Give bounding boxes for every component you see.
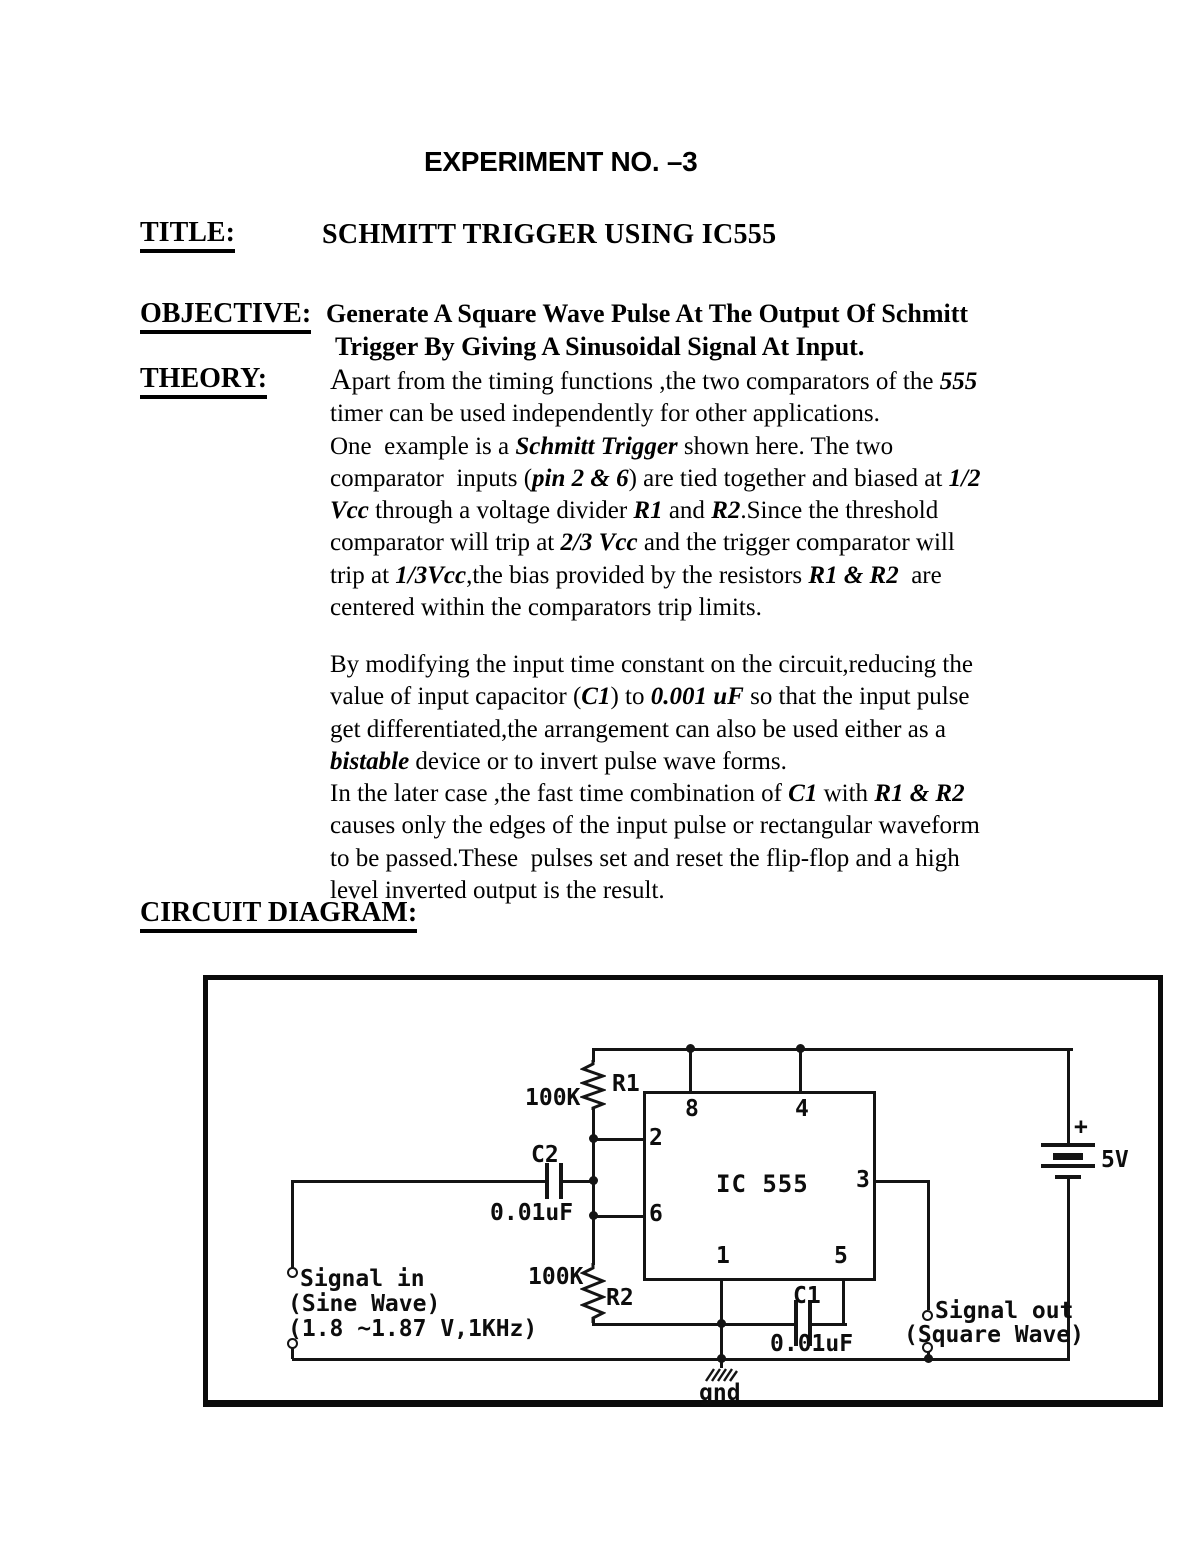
ic555-label: IC 555 — [716, 1172, 809, 1196]
document-page: { "header": { "title": "EXPERIMENT NO. –… — [0, 0, 1200, 1553]
wire-top-rail — [593, 1048, 1073, 1051]
signal-in-label: Signal in — [300, 1267, 425, 1291]
signal-out-terminal — [922, 1310, 933, 1321]
c2-value-label: 0.01uF — [490, 1201, 573, 1225]
wire-pin3 — [876, 1180, 930, 1183]
text-line: bistable device or to invert pulse wave … — [330, 746, 980, 778]
signal-in-type-label: (Sine Wave) — [288, 1292, 440, 1316]
wire-pin8 — [689, 1048, 692, 1093]
junction-dot — [589, 1211, 598, 1220]
title-text: SCHMITT TRIGGER USING IC555 — [322, 219, 776, 251]
signal-in-spec-label: (1.8 ~1.87 V,1KHz) — [288, 1317, 537, 1341]
resistor-r1-symbol — [580, 1060, 606, 1110]
theory-label: THEORY: — [140, 364, 267, 399]
junction-dot — [717, 1354, 726, 1363]
r1-value-label: 100K — [525, 1086, 580, 1110]
battery-plate-short — [1053, 1153, 1083, 1160]
text-line: comparator will trip at 2/3 Vcc and the … — [330, 527, 981, 559]
text-line: By modifying the input time constant on … — [330, 649, 980, 681]
text-line: level inverted output is the result. — [330, 875, 980, 907]
text-line: comparator inputs (pin 2 & 6) are tied t… — [330, 463, 981, 495]
r2-name-label: R2 — [606, 1286, 634, 1310]
text-line: trip at 1/3Vcc,the bias provided by the … — [330, 560, 981, 592]
wire-divider — [592, 1108, 595, 1265]
wire-mid-rail-left — [593, 1323, 796, 1326]
text-line: to be passed.These pulses set and reset … — [330, 843, 980, 875]
battery-plus-label: + — [1074, 1115, 1088, 1139]
junction-dot — [924, 1354, 933, 1363]
theory-paragraph-2: By modifying the input time constant on … — [330, 649, 980, 907]
text-line: Apart from the timing functions ,the two… — [330, 364, 981, 398]
text-line: One example is a Schmitt Trigger shown h… — [330, 431, 981, 463]
objective-text: Generate A Square Wave Pulse At The Outp… — [326, 297, 968, 363]
junction-dot — [796, 1044, 805, 1053]
junction-dot — [686, 1044, 695, 1053]
title-label: TITLE: — [140, 218, 235, 253]
wire-c2-left — [292, 1180, 547, 1183]
battery-plate-long — [1041, 1164, 1095, 1168]
text-line: Trigger By Giving A Sinusoidal Signal At… — [335, 330, 968, 363]
wire-signal-out — [927, 1180, 930, 1310]
pin6-label: 6 — [649, 1202, 663, 1226]
pin8-label: 8 — [685, 1097, 699, 1121]
text-line: centered within the comparators trip lim… — [330, 592, 981, 624]
c2-name-label: C2 — [531, 1143, 559, 1167]
r2-value-label: 100K — [528, 1265, 583, 1289]
wire-signal-in-stub — [291, 1348, 294, 1359]
capacitor-c2-plate — [559, 1163, 563, 1199]
text-line: In the later case ,the fast time combina… — [330, 778, 980, 810]
pin3-label: 3 — [856, 1168, 870, 1192]
wire-signal-in — [291, 1180, 294, 1268]
battery-plate-long — [1041, 1143, 1095, 1147]
battery-plate-short — [1055, 1175, 1081, 1179]
capacitor-c2-plate — [545, 1163, 549, 1199]
text-line: value of input capacitor (C1) to 0.001 u… — [330, 681, 980, 713]
pin2-label: 2 — [649, 1126, 663, 1150]
c1-name-label: C1 — [793, 1284, 821, 1308]
wire-pin6 — [593, 1215, 645, 1218]
wire-ground-rail — [292, 1358, 1070, 1361]
signal-in-terminal — [287, 1267, 298, 1278]
circuit-diagram: 100K R1 C2 0.01uF 100K R2 IC 555 8 4 2 6… — [203, 975, 1163, 1407]
ground-label: gnd — [699, 1381, 741, 1405]
wire-pin2 — [593, 1138, 645, 1141]
text-line: Generate A Square Wave Pulse At The Outp… — [326, 297, 968, 330]
text-line: get differentiated,the arrangement can a… — [330, 714, 980, 746]
text-line: causes only the edges of the input pulse… — [330, 810, 980, 842]
signal-out-label: Signal out — [935, 1299, 1073, 1323]
resistor-r2-symbol — [580, 1263, 606, 1323]
text-line: timer can be used independently for othe… — [330, 398, 981, 430]
wire-battery-top — [1067, 1048, 1070, 1145]
circuit-diagram-label: CIRCUIT DIAGRAM: — [140, 898, 417, 933]
wire-pin5 — [842, 1281, 845, 1326]
battery-value-label: 5V — [1101, 1148, 1129, 1172]
pin5-label: 5 — [834, 1244, 848, 1268]
r1-name-label: R1 — [612, 1072, 640, 1096]
theory-paragraph-1: Apart from the timing functions ,the two… — [330, 364, 981, 624]
wire-pin4 — [799, 1048, 802, 1093]
objective-label: OBJECTIVE: — [140, 299, 311, 334]
c1-value-label: 0.01uF — [770, 1332, 853, 1356]
signal-out-type-label: (Square Wave) — [904, 1323, 1084, 1347]
experiment-heading: EXPERIMENT NO. –3 — [424, 146, 697, 178]
junction-dot — [589, 1176, 598, 1185]
junction-dot — [589, 1134, 598, 1143]
pin1-label: 1 — [716, 1244, 730, 1268]
pin4-label: 4 — [795, 1097, 809, 1121]
text-line: Vcc through a voltage divider R1 and R2.… — [330, 495, 981, 527]
junction-dot — [717, 1319, 726, 1328]
